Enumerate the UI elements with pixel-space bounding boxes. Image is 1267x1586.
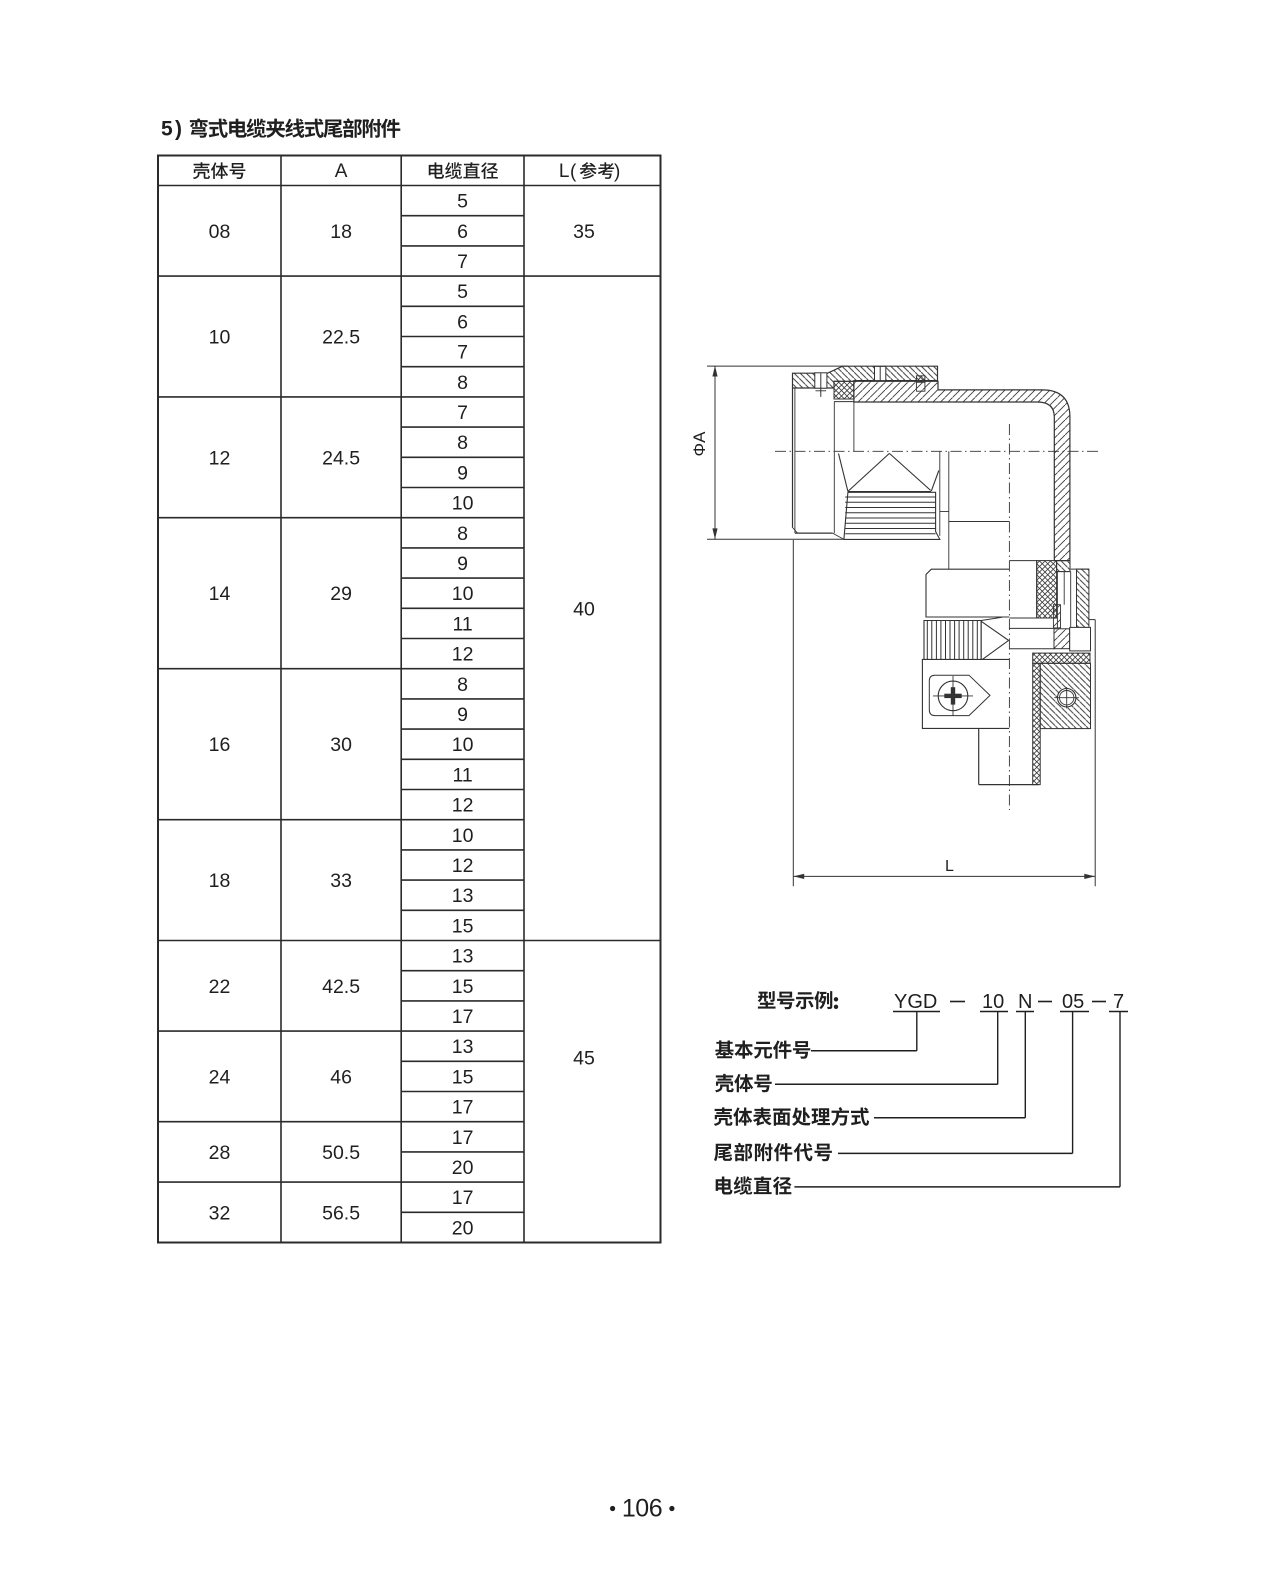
svg-text:18: 18 — [330, 221, 352, 243]
svg-text:5: 5 — [457, 191, 468, 213]
svg-text:24: 24 — [209, 1066, 231, 1088]
svg-text:8: 8 — [457, 372, 468, 394]
svg-text:15: 15 — [452, 915, 474, 937]
svg-text:17: 17 — [452, 1127, 474, 1149]
svg-text:20: 20 — [452, 1217, 474, 1239]
svg-text:22.5: 22.5 — [322, 327, 360, 349]
svg-text:08: 08 — [209, 221, 231, 243]
svg-text:35: 35 — [573, 221, 595, 243]
svg-text:10: 10 — [982, 991, 1004, 1013]
svg-text:13: 13 — [452, 885, 474, 907]
svg-text:46: 46 — [330, 1066, 352, 1088]
svg-text:A: A — [335, 161, 348, 182]
svg-text:56.5: 56.5 — [322, 1202, 360, 1224]
svg-text:8: 8 — [457, 523, 468, 545]
svg-text:05: 05 — [1062, 991, 1084, 1013]
svg-text:18: 18 — [209, 870, 231, 892]
svg-text:9: 9 — [457, 462, 468, 484]
svg-text:45: 45 — [573, 1048, 595, 1070]
svg-text:28: 28 — [209, 1142, 231, 1164]
svg-text:ΦA: ΦA — [690, 431, 709, 457]
svg-text:7: 7 — [457, 342, 468, 364]
svg-text:6: 6 — [457, 221, 468, 243]
svg-text:): ) — [614, 162, 620, 183]
svg-text:12: 12 — [452, 644, 474, 666]
svg-text:10: 10 — [452, 825, 474, 847]
svg-text:33: 33 — [330, 870, 352, 892]
svg-text:12: 12 — [452, 855, 474, 877]
svg-text:(: ( — [570, 162, 577, 183]
svg-text:10: 10 — [452, 734, 474, 756]
svg-text:7: 7 — [457, 251, 468, 273]
svg-text:11: 11 — [452, 613, 472, 635]
svg-text:40: 40 — [573, 598, 595, 620]
svg-text:5: 5 — [161, 118, 173, 141]
svg-text:L: L — [559, 161, 570, 182]
svg-text:42.5: 42.5 — [322, 976, 360, 998]
svg-text:30: 30 — [330, 734, 352, 756]
svg-text:24.5: 24.5 — [322, 447, 360, 469]
svg-text:10: 10 — [452, 493, 474, 515]
svg-text:6: 6 — [457, 311, 468, 333]
svg-text:17: 17 — [452, 1097, 474, 1119]
svg-text:7: 7 — [457, 402, 468, 424]
svg-text:L: L — [945, 858, 954, 875]
svg-text:29: 29 — [330, 583, 352, 605]
svg-text:10: 10 — [452, 583, 474, 605]
svg-text:): ) — [175, 118, 182, 141]
svg-text:16: 16 — [209, 734, 231, 756]
svg-text:13: 13 — [452, 1036, 474, 1058]
svg-text:17: 17 — [452, 1006, 474, 1028]
svg-text:9: 9 — [457, 553, 468, 575]
svg-text:12: 12 — [452, 795, 474, 817]
svg-text:13: 13 — [452, 946, 474, 968]
svg-text:15: 15 — [452, 1066, 474, 1088]
svg-text:9: 9 — [457, 704, 468, 726]
svg-text:10: 10 — [209, 327, 231, 349]
svg-text:14: 14 — [209, 583, 231, 605]
svg-text:7: 7 — [1113, 991, 1124, 1013]
svg-text:106: 106 — [622, 1495, 662, 1523]
svg-text:17: 17 — [452, 1187, 474, 1209]
svg-text:50.5: 50.5 — [322, 1142, 360, 1164]
svg-text:22: 22 — [209, 976, 231, 998]
svg-text:YGD: YGD — [894, 991, 937, 1013]
svg-text:15: 15 — [452, 976, 474, 998]
svg-text:12: 12 — [209, 447, 231, 469]
svg-text:8: 8 — [457, 432, 468, 454]
svg-text:11: 11 — [452, 764, 472, 786]
svg-text:N: N — [1018, 991, 1032, 1013]
svg-text:8: 8 — [457, 674, 468, 696]
svg-text:32: 32 — [209, 1202, 231, 1224]
svg-text:20: 20 — [452, 1157, 474, 1179]
svg-text:5: 5 — [457, 281, 468, 303]
